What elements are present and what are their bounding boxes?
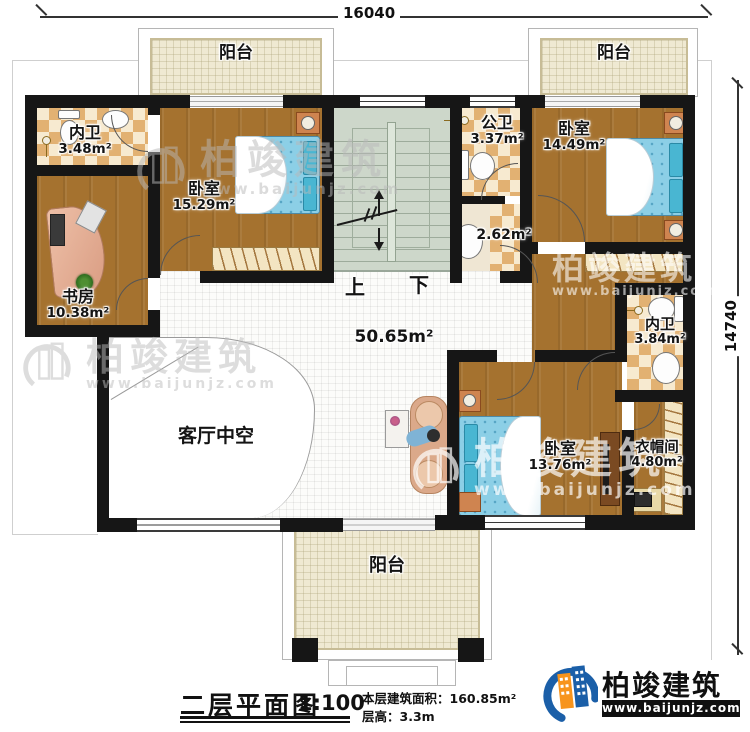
- stair-arrow-line: [378, 198, 380, 216]
- room-label-bedroom-top-left: 卧室 15.29m²: [162, 180, 246, 213]
- stair-up-label: 上: [342, 276, 368, 298]
- stair-stringer: [387, 122, 396, 262]
- room-label-balcony-top-right: 阳台: [540, 44, 688, 63]
- room-label-cloakroom: 衣帽间 4.80m²: [624, 440, 690, 471]
- wall: [447, 350, 497, 362]
- stair-arrow-line: [378, 228, 380, 242]
- room-label-balcony-bottom: 阳台: [294, 556, 480, 576]
- wall: [148, 95, 160, 115]
- company-logo-icon: [542, 660, 598, 724]
- floor-plan-canvas: 16040 14740: [0, 0, 750, 732]
- eave-line: [12, 534, 98, 535]
- wall: [585, 515, 695, 530]
- room-name: 内卫: [626, 316, 694, 333]
- eave-line: [711, 60, 712, 660]
- room-name: 书房: [35, 288, 121, 306]
- dimension-tick: [701, 4, 713, 16]
- room-area: 15.29m²: [162, 198, 246, 213]
- room-area: 13.76m²: [518, 458, 602, 473]
- watermark-logo-icon: [18, 336, 76, 394]
- wall: [585, 242, 695, 254]
- window: [360, 95, 425, 108]
- wall: [97, 325, 109, 532]
- plan-area-text: 本层建筑面积：160.85m²: [362, 688, 516, 707]
- nightstand: [459, 492, 481, 512]
- room-name: 卧室: [162, 180, 246, 198]
- dimension-text-top: 16040: [338, 4, 400, 22]
- room-label-bedroom-top-right: 卧室 14.49m²: [532, 120, 616, 153]
- window: [470, 95, 515, 108]
- ceiling-lamp-icon: [634, 306, 643, 315]
- room-label-living-void: 客厅中空: [158, 426, 274, 447]
- pillow: [464, 424, 478, 462]
- room-label-balcony-top-left: 阳台: [150, 44, 322, 63]
- room-name: 内卫: [47, 124, 123, 142]
- room-area: 4.80m²: [624, 456, 690, 471]
- room-name: 衣帽间: [624, 440, 690, 456]
- lamp-icon: [669, 116, 683, 130]
- room-label-ensuite-right: 内卫 3.84m²: [626, 316, 694, 347]
- balcony-bottom-floor: [294, 528, 480, 650]
- wall: [148, 310, 160, 337]
- wall: [322, 95, 334, 283]
- room-label-shower-room: 2.62m²: [474, 228, 534, 244]
- sofa-cushion: [415, 460, 443, 488]
- wall: [200, 271, 322, 283]
- balcony-door-threshold: [190, 96, 283, 107]
- wall: [615, 283, 683, 295]
- wall: [447, 362, 459, 515]
- room-area: 10.38m²: [35, 306, 121, 321]
- room-name: 卧室: [518, 440, 602, 458]
- plan-height-text: 层高：3.3m: [362, 706, 435, 725]
- sink: [652, 352, 680, 384]
- dimension-text-right: 14740: [722, 296, 740, 356]
- room-area: 3.48m²: [47, 142, 123, 157]
- window: [137, 518, 280, 532]
- wall: [280, 518, 343, 532]
- stair-arrow-up-icon: [374, 190, 384, 199]
- room-label-ensuite-top-left: 内卫 3.48m²: [47, 124, 123, 157]
- room-area: 3.84m²: [626, 333, 694, 348]
- wardrobe: [212, 247, 320, 271]
- balcony-pillar: [292, 638, 318, 662]
- room-name: 公卫: [466, 114, 528, 132]
- wall: [97, 518, 137, 532]
- wall: [25, 165, 160, 176]
- monitor: [50, 214, 65, 246]
- lamp-icon: [669, 223, 683, 237]
- lamp-icon: [463, 394, 476, 407]
- room-name: 卧室: [532, 120, 616, 138]
- wall: [25, 325, 160, 337]
- wall: [532, 242, 538, 254]
- plan-scale: 1:100: [298, 691, 365, 715]
- wall: [25, 95, 190, 108]
- room-area: 3.37m²: [466, 132, 528, 147]
- eave-line: [12, 60, 13, 535]
- room-label-study: 书房 10.38m²: [35, 288, 121, 321]
- dimension-line-right: [737, 80, 739, 655]
- wall: [435, 515, 485, 530]
- balcony-door-threshold: [545, 96, 640, 107]
- wall: [450, 95, 462, 283]
- pillow: [303, 141, 317, 175]
- lamp-icon: [301, 116, 315, 130]
- toilet: [58, 110, 80, 119]
- person-head: [427, 429, 440, 442]
- tv: [603, 444, 609, 494]
- dimension-tick: [36, 4, 48, 16]
- wall: [615, 390, 695, 402]
- balcony-bottom-step: [346, 666, 438, 686]
- title-underline: [180, 716, 350, 723]
- wall: [148, 152, 160, 278]
- balcony-pillar: [458, 638, 484, 662]
- pillow: [669, 143, 683, 177]
- company-website: www.baijunjz.com: [602, 700, 740, 717]
- stair-arrow-down-icon: [374, 242, 384, 251]
- pillow: [303, 177, 317, 211]
- wall: [425, 95, 470, 108]
- room-label-public-bath: 公卫 3.37m²: [466, 114, 528, 147]
- room-label-bedroom-bottom: 卧室 13.76m²: [518, 440, 602, 473]
- pillow: [669, 179, 683, 213]
- balcony-door-threshold: [343, 519, 435, 531]
- window: [485, 515, 585, 530]
- room-label-hall-area: 50.65m²: [348, 328, 440, 347]
- stair-hall-edge: [334, 270, 450, 272]
- flower: [390, 416, 400, 426]
- company-name: 柏竣建筑: [602, 664, 722, 704]
- room-area: 14.49m²: [532, 138, 616, 153]
- stair-down-label: 下: [406, 274, 432, 296]
- wall: [450, 271, 462, 283]
- laptop: [634, 492, 652, 507]
